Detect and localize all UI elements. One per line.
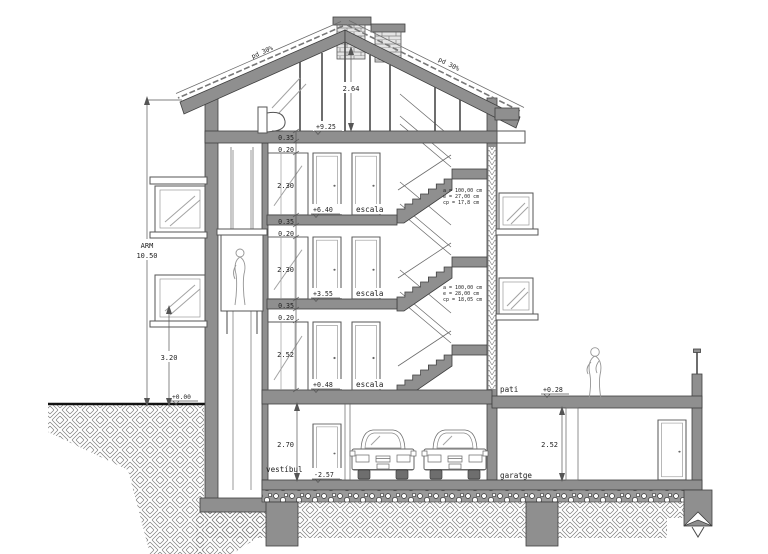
dim-beam: 0.20 (278, 230, 294, 238)
chimney-cap (333, 17, 371, 25)
window-ledge (150, 177, 207, 184)
footing (266, 502, 298, 546)
room-label-escala: escala (356, 289, 383, 298)
facade-window (499, 278, 533, 314)
dim-room: 2.30 (277, 182, 294, 190)
roof-slope-right (345, 30, 520, 128)
car-2 (422, 430, 488, 479)
soil-hatch-under-pit (196, 512, 276, 554)
ground-floor-slab (262, 390, 492, 404)
arm-label: ARM (141, 242, 154, 250)
attic-glazing (272, 78, 300, 108)
basement (313, 404, 686, 480)
footing (526, 502, 558, 546)
room-label-garatge: garatge (500, 471, 532, 480)
chimney-cap (371, 24, 405, 32)
stair-landing (452, 169, 487, 179)
person-on-patio (587, 348, 601, 399)
window-sill (496, 229, 538, 235)
level-f2: +3.55 (313, 290, 333, 298)
dim-252-garage: 2.52 (541, 441, 558, 449)
dim-room: 2.30 (277, 266, 294, 274)
elevator-pit-slab (200, 498, 270, 512)
dim-270: 2.70 (277, 441, 294, 449)
dim-slab: 0.35 (278, 218, 294, 226)
roof-tile-line-right (349, 21, 524, 108)
footing-break-tail (692, 527, 704, 537)
right-facade (496, 193, 538, 320)
garage-pillar (566, 408, 578, 480)
attic-glazing (278, 84, 306, 114)
left-exterior-wall (205, 92, 218, 512)
room-label-escala: escala (356, 205, 383, 214)
level-basement: -2.57 (314, 471, 334, 479)
facade-window (155, 275, 205, 321)
right-cornice (497, 131, 525, 143)
stair-note-line: cp = 18,05 cm (443, 297, 482, 303)
elevator-cab (221, 235, 263, 311)
car-1 (350, 430, 416, 479)
level-f1: +0.48 (313, 381, 333, 389)
room-label-pati: pati (500, 385, 519, 394)
patio-fence-post-cap (694, 349, 701, 353)
right-wall-insulation-hatch (489, 147, 496, 389)
level-f3: +6.40 (313, 206, 333, 214)
elevator-cab-beam (217, 229, 267, 235)
dim-264: 2.64 (343, 85, 360, 93)
level-pati: +0.28 (543, 386, 563, 394)
soil-hatch-left (48, 404, 204, 554)
dim-beam: 0.20 (278, 146, 294, 154)
stair-note-line: cp = 17,8 cm (443, 200, 479, 206)
room-label-vestibul: vestíbul (266, 465, 303, 474)
stair-landing (452, 257, 487, 267)
dim-slab: 0.35 (278, 302, 294, 310)
room-label-escala: escala (356, 380, 383, 389)
roof-slope-left (180, 30, 345, 114)
dim-slab: 0.35 (278, 134, 294, 142)
patio-slab (492, 396, 702, 408)
basement-floor-slab (262, 480, 702, 490)
section-drawing: ARM 10.50 3.20 2.64 0.35 0.20 2.30 0.35 … (0, 0, 768, 554)
facade-window (499, 193, 533, 229)
attic-floor-slab (205, 131, 497, 143)
footing-right (684, 490, 712, 526)
window-sill (150, 232, 207, 238)
roof-tiles-left (178, 26, 343, 98)
level-street: +0.00 (172, 394, 191, 401)
arm-value: 10.50 (136, 252, 157, 260)
dim-room: 2.52 (277, 351, 294, 359)
dim-320: 3.20 (161, 354, 178, 362)
soil-and-ground (48, 404, 702, 554)
window-sill (150, 321, 207, 327)
stair-landing (452, 345, 487, 355)
facade-window (155, 186, 205, 232)
right-eave-block (495, 108, 519, 120)
section-drawing-page: ARM 10.50 3.20 2.64 0.35 0.20 2.30 0.35 … (0, 0, 768, 554)
roof (176, 17, 525, 143)
level-attic: +9.25 (316, 123, 336, 131)
garage-door (658, 420, 686, 480)
patio-right-wall (692, 374, 702, 490)
dim-beam: 0.20 (278, 314, 294, 322)
window-sill (496, 314, 538, 320)
gravel-bed (262, 490, 702, 502)
